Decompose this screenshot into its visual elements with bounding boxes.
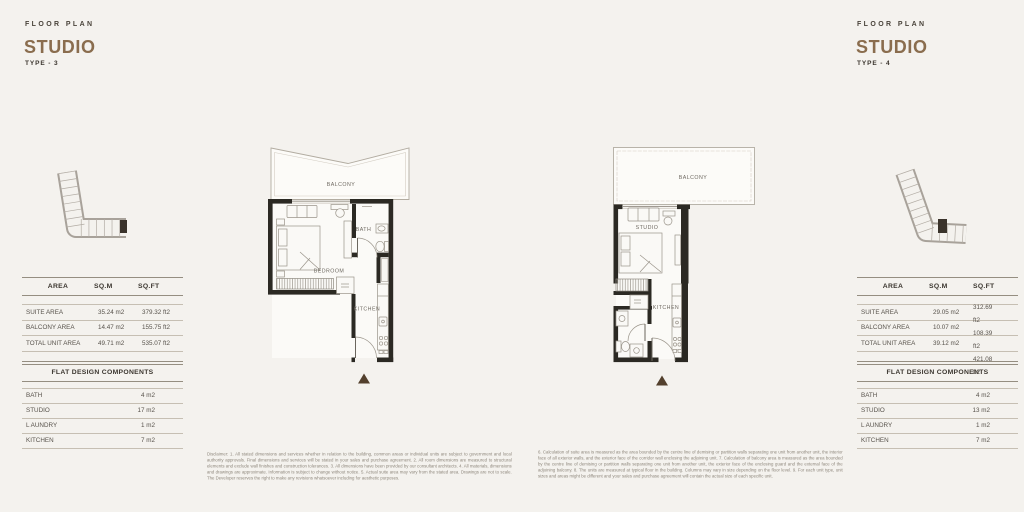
table-row: TOTAL UNIT AREA 49.71 m2 535.07 ft2 bbox=[22, 336, 183, 351]
col-sqm: SQ.M bbox=[929, 283, 973, 290]
balcony-label: BALCONY bbox=[679, 175, 707, 181]
sqft-wrapped-column: 312.69 ft2 108.39 ft2 421.08 ft2 bbox=[973, 302, 992, 379]
sqft-line: ft2 bbox=[973, 315, 992, 328]
sqft-line: 421.08 bbox=[973, 354, 992, 367]
floor-plan-type-4: BALCONY bbox=[595, 138, 785, 394]
entrance-marker-icon bbox=[656, 376, 668, 386]
kitchen-label: KITCHEN bbox=[653, 305, 679, 311]
area-table: AREA SQ.M SQ.FT SUITE AREA 35.24 m2 379.… bbox=[22, 277, 183, 449]
component-value: 4 m2 bbox=[141, 392, 155, 399]
kitchen-label: KITCHEN bbox=[354, 307, 380, 313]
entrance-marker-icon bbox=[358, 374, 370, 384]
component-label: KITCHEN bbox=[26, 437, 54, 444]
col-sqft: SQ.FT bbox=[138, 283, 183, 290]
row-sqm: 14.47 m2 bbox=[98, 324, 142, 331]
row-label: BALCONY AREA bbox=[22, 324, 98, 331]
row-sqm: 29.05 m2 bbox=[933, 309, 977, 316]
component-value: 17 m2 bbox=[137, 407, 155, 414]
disclaimer-left: Disclaimer: 1. All stated dimensions and… bbox=[207, 451, 512, 508]
right-type-label: TYPE - 4 bbox=[857, 60, 891, 67]
sqft-line: 312.69 bbox=[973, 302, 992, 315]
table-row: SUITE AREA 29.05 m2 bbox=[857, 305, 1018, 320]
component-row: BATH 4 m2 bbox=[857, 389, 1018, 403]
component-value: 1 m2 bbox=[976, 422, 990, 429]
row-label: TOTAL UNIT AREA bbox=[857, 340, 933, 347]
table-row: BALCONY AREA 14.47 m2 155.75 ft2 bbox=[22, 321, 183, 336]
balcony-outline bbox=[271, 148, 409, 200]
table-row: SUITE AREA 35.24 m2 379.32 ft2 bbox=[22, 305, 183, 320]
wardrobe bbox=[277, 279, 334, 290]
row-label: SUITE AREA bbox=[857, 309, 933, 316]
room-label: STUDIO bbox=[636, 225, 659, 231]
service-shaft bbox=[382, 259, 389, 282]
component-label: STUDIO bbox=[26, 407, 50, 414]
area-table: AREA SQ.M SQ.FT SUITE AREA 29.05 m2 BALC… bbox=[857, 277, 1018, 449]
col-sqft: SQ.FT bbox=[973, 283, 1018, 290]
row-label: TOTAL UNIT AREA bbox=[22, 340, 98, 347]
key-plan-icon bbox=[888, 162, 983, 257]
component-row: L AUNDRY 1 m2 bbox=[22, 419, 183, 433]
disclaimer-right: 6. Calculation of suite area is measured… bbox=[538, 449, 843, 506]
row-sqm: 10.07 m2 bbox=[933, 324, 977, 331]
component-row: KITCHEN 7 m2 bbox=[857, 434, 1018, 448]
sqft-line: ft2 bbox=[973, 341, 992, 354]
col-area: AREA bbox=[22, 283, 94, 290]
row-sqm: 35.24 m2 bbox=[98, 309, 142, 316]
row-sqm: 39.12 m2 bbox=[933, 340, 977, 347]
left-eyebrow: FLOOR PLAN bbox=[25, 21, 95, 28]
balcony-label: BALCONY bbox=[327, 182, 355, 188]
col-sqm: SQ.M bbox=[94, 283, 138, 290]
row-label: SUITE AREA bbox=[22, 309, 98, 316]
left-type-label: TYPE - 3 bbox=[25, 60, 59, 67]
unit-highlight bbox=[120, 220, 127, 233]
sqft-line: ft2 bbox=[973, 367, 992, 380]
component-label: BATH bbox=[26, 392, 42, 399]
component-row: L AUNDRY 1 m2 bbox=[857, 419, 1018, 433]
component-label: KITCHEN bbox=[861, 437, 889, 444]
row-sqft: 379.32 ft2 bbox=[142, 309, 183, 316]
component-label: L AUNDRY bbox=[26, 422, 57, 429]
component-row: KITCHEN 7 m2 bbox=[22, 434, 183, 448]
room-label: BEDROOM bbox=[314, 269, 345, 275]
component-row: STUDIO 17 m2 bbox=[22, 404, 183, 418]
col-area: AREA bbox=[857, 283, 929, 290]
component-value: 7 m2 bbox=[976, 437, 990, 444]
component-label: STUDIO bbox=[861, 407, 885, 414]
bath-label: BATH bbox=[356, 227, 372, 233]
table-row: BALCONY AREA 10.07 m2 bbox=[857, 321, 1018, 336]
component-value: 4 m2 bbox=[976, 392, 990, 399]
components-title: FLAT DESIGN COMPONENTS bbox=[857, 365, 1018, 381]
components-title: FLAT DESIGN COMPONENTS bbox=[22, 365, 183, 381]
disclaimer-text: Disclaimer: 1. All stated dimensions and… bbox=[207, 451, 512, 482]
row-sqft: 535.07 ft2 bbox=[142, 340, 183, 347]
unit-highlight bbox=[938, 219, 947, 233]
component-label: L AUNDRY bbox=[861, 422, 892, 429]
row-sqft: 155.75 ft2 bbox=[142, 324, 183, 331]
component-value: 7 m2 bbox=[141, 437, 155, 444]
component-label: BATH bbox=[861, 392, 877, 399]
row-label: BALCONY AREA bbox=[857, 324, 933, 331]
component-value: 13 m2 bbox=[972, 407, 990, 414]
key-plan-icon bbox=[40, 162, 135, 257]
table-row: TOTAL UNIT AREA 39.12 m2 bbox=[857, 336, 1018, 351]
sqft-line: 108.39 bbox=[973, 328, 992, 341]
row-sqm: 49.71 m2 bbox=[98, 340, 142, 347]
area-table-header: AREA SQ.M SQ.FT bbox=[857, 278, 1018, 295]
area-table-header: AREA SQ.M SQ.FT bbox=[22, 278, 183, 295]
component-row: BATH 4 m2 bbox=[22, 389, 183, 403]
floor-plan-page: FLOOR PLAN STUDIO TYPE - 3 FLOOR PLAN ST… bbox=[0, 0, 1024, 512]
floor-plan-type-3: BALCONY bbox=[258, 138, 438, 394]
disclaimer-text: 6. Calculation of suite area is measured… bbox=[538, 449, 843, 480]
component-value: 1 m2 bbox=[141, 422, 155, 429]
component-row: STUDIO 13 m2 bbox=[857, 404, 1018, 418]
right-page-title: STUDIO bbox=[856, 37, 928, 58]
wardrobe bbox=[616, 279, 648, 291]
right-eyebrow: FLOOR PLAN bbox=[857, 21, 927, 28]
left-page-title: STUDIO bbox=[24, 37, 96, 58]
